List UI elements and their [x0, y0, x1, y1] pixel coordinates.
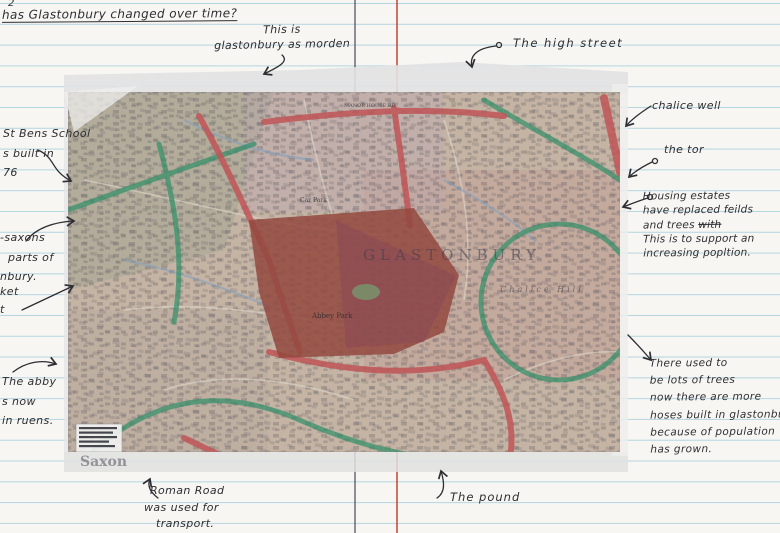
annotation-the-tor: the tor: [664, 140, 704, 159]
annotation-line: s now: [2, 392, 56, 412]
annotation-high-street: The high street: [513, 34, 623, 53]
annotation-line: and trees with: [643, 217, 754, 232]
annotation-line: now there are more: [650, 389, 780, 407]
annotation-line: St Bens School: [3, 124, 90, 144]
annotation-line: be lots of trees: [650, 372, 780, 390]
annotation-line: This is to support an: [643, 231, 754, 246]
annotation-line: 76: [3, 163, 90, 183]
annotation-line: increasing popltion.: [643, 246, 754, 261]
annotation-line: -saxons: [0, 228, 54, 248]
annotation-abbey-ruins: The abby s now in ruens.: [2, 372, 56, 431]
annotation-the-pound: The pound: [450, 488, 520, 507]
annotation-line: have replaced feilds: [643, 203, 754, 218]
annotation-line: in ruens.: [2, 411, 56, 431]
annotation-line: Housing estates: [643, 189, 754, 204]
annotation-line: parts of: [0, 248, 54, 268]
annotation-line: was used for: [144, 500, 224, 517]
margin-line-gray: [354, 0, 356, 533]
annotation-line: Roman Road: [150, 483, 224, 500]
annotation-line: There used to: [650, 354, 780, 372]
annotation-line: t: [0, 301, 19, 319]
page-title-text: has Glastonbury changed over time?: [2, 6, 237, 22]
annotation-line: ket: [0, 283, 19, 301]
annotation-fragments: ket t: [0, 283, 19, 319]
annotation-chalice-well: chalice well: [652, 96, 721, 115]
annotation-modern-map: This is glastonbury as morden: [214, 21, 351, 53]
annotation-line: because of population: [650, 423, 780, 441]
annotation-st-bens: St Bens School s built in 76: [3, 124, 90, 183]
annotation-struck-word: with: [698, 218, 721, 230]
annotation-saxons: -saxons parts of nbury.: [0, 228, 54, 287]
annotation-line: hoses built in glastonbu: [650, 406, 780, 424]
annotation-housing-estates: Housing estates have replaced feilds and…: [643, 189, 755, 261]
margin-line-red: [396, 0, 398, 533]
annotation-line: The abby: [2, 372, 56, 392]
annotation-line: glastonbury as morden: [214, 36, 350, 53]
annotation-line: has grown.: [650, 440, 780, 458]
annotation-line: transport.: [156, 516, 224, 533]
annotation-roman-road: Roman Road was used for transport.: [150, 483, 224, 533]
page-title: has Glastonbury changed over time?: [2, 4, 237, 25]
annotation-trees: There used to be lots of trees now there…: [650, 354, 780, 458]
annotation-line: s built in: [3, 144, 90, 164]
annotation-text: and trees: [643, 219, 695, 231]
